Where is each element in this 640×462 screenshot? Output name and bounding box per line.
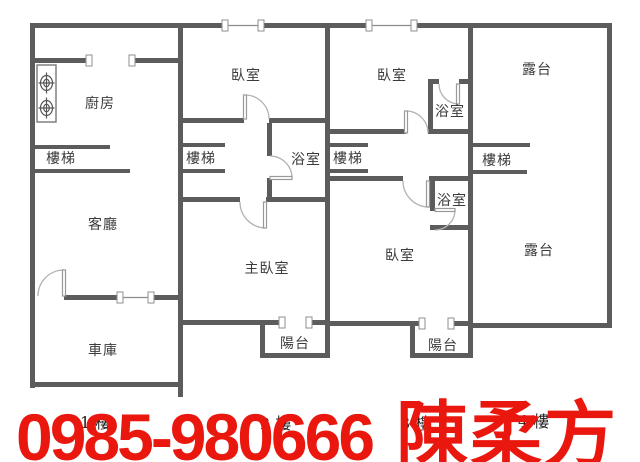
window-jamb bbox=[258, 20, 264, 31]
window-jamb bbox=[411, 20, 417, 31]
door-arc-icon bbox=[270, 156, 292, 178]
wall bbox=[30, 23, 35, 388]
wall bbox=[178, 23, 183, 397]
window-jamb bbox=[86, 55, 92, 66]
stair-line bbox=[473, 143, 530, 147]
wall bbox=[417, 23, 612, 28]
wall bbox=[330, 129, 406, 134]
room-label-bedroom-f3-top: 臥室 bbox=[377, 65, 407, 85]
door-leaf bbox=[427, 181, 430, 207]
door-arc-icon bbox=[38, 270, 64, 296]
wall bbox=[430, 225, 468, 230]
wall bbox=[468, 23, 473, 358]
wall bbox=[183, 320, 279, 325]
wall bbox=[607, 23, 612, 328]
door-leaf bbox=[244, 95, 247, 119]
door-leaf bbox=[270, 177, 292, 180]
phone-number: 0985-980666 bbox=[16, 399, 372, 462]
room-label-balcony-f2: 陽台 bbox=[280, 333, 310, 353]
window-jamb bbox=[366, 20, 372, 31]
window-jamb bbox=[448, 318, 454, 329]
window-jamb bbox=[222, 20, 228, 31]
door-leaf bbox=[63, 270, 66, 296]
stove-icon bbox=[37, 65, 56, 122]
door-arc-icon bbox=[403, 181, 429, 207]
room-label-balcony-f3: 陽台 bbox=[428, 335, 458, 355]
wall bbox=[430, 181, 435, 211]
room-label-kitchen: 廚房 bbox=[85, 93, 115, 113]
agent-name: 陳柔方 bbox=[396, 376, 618, 462]
room-label-stairs-f2: 樓梯 bbox=[186, 148, 216, 168]
window-jamb bbox=[419, 318, 425, 329]
stair-line bbox=[35, 169, 130, 173]
room-label-terrace-top: 露台 bbox=[522, 59, 552, 79]
wall bbox=[312, 320, 330, 325]
room-label-stairs-f4: 樓梯 bbox=[482, 150, 512, 170]
stair-line bbox=[330, 143, 368, 147]
wall bbox=[260, 353, 330, 358]
wall bbox=[330, 321, 419, 326]
room-label-bedroom-f3-bottom: 臥室 bbox=[385, 245, 415, 265]
wall bbox=[428, 129, 468, 134]
window-jamb bbox=[306, 317, 312, 328]
stair-line bbox=[183, 169, 225, 173]
stair-line bbox=[183, 143, 225, 147]
room-label-garage: 車庫 bbox=[88, 340, 118, 360]
stair-line bbox=[330, 169, 368, 173]
wall bbox=[30, 23, 222, 28]
stair-lines bbox=[35, 143, 530, 174]
contact-overlay: 0985-980666 陳柔方 bbox=[16, 376, 618, 462]
wall bbox=[135, 58, 183, 63]
room-label-bath-f2: 浴室 bbox=[291, 149, 321, 169]
door-leaf bbox=[405, 111, 408, 133]
floor-plan-image: 廚房 臥室 臥室 露台 樓梯 樓梯 樓梯 樓梯 浴室 浴室 浴室 客廳 主臥室 … bbox=[0, 0, 640, 462]
wall bbox=[325, 23, 330, 358]
wall bbox=[454, 321, 468, 326]
window-jamb bbox=[129, 55, 135, 66]
wall bbox=[264, 23, 366, 28]
wall bbox=[330, 176, 403, 181]
room-label-bedroom-f2: 臥室 bbox=[231, 65, 261, 85]
window-jamb bbox=[117, 292, 123, 303]
window-jamb bbox=[148, 292, 154, 303]
door-arc-icon bbox=[240, 202, 266, 228]
wall bbox=[269, 118, 325, 123]
wall bbox=[35, 58, 86, 63]
stair-line bbox=[473, 170, 527, 174]
wall bbox=[428, 79, 433, 134]
wall bbox=[459, 79, 468, 84]
wall bbox=[267, 123, 272, 156]
door-leaf bbox=[264, 202, 267, 228]
wall bbox=[183, 118, 244, 123]
wall bbox=[64, 295, 117, 300]
room-label-master-bedroom: 主臥室 bbox=[245, 258, 290, 278]
wall bbox=[154, 295, 183, 300]
door-arc-icon bbox=[245, 95, 269, 119]
door-arc-icon bbox=[406, 111, 428, 133]
wall bbox=[183, 197, 240, 202]
room-label-bath-f3-bottom: 浴室 bbox=[437, 190, 467, 210]
room-label-living: 客廳 bbox=[88, 214, 118, 234]
wall bbox=[429, 176, 468, 181]
window-lines bbox=[123, 26, 411, 298]
room-label-terrace-bottom: 露台 bbox=[524, 240, 554, 260]
wall bbox=[428, 79, 439, 84]
room-label-stairs-f1: 樓梯 bbox=[46, 148, 76, 168]
wall bbox=[266, 197, 325, 202]
room-label-bath-f3-top: 浴室 bbox=[435, 101, 465, 121]
window-jamb bbox=[279, 317, 285, 328]
wall bbox=[468, 323, 612, 328]
room-label-stairs-f3: 樓梯 bbox=[333, 148, 363, 168]
